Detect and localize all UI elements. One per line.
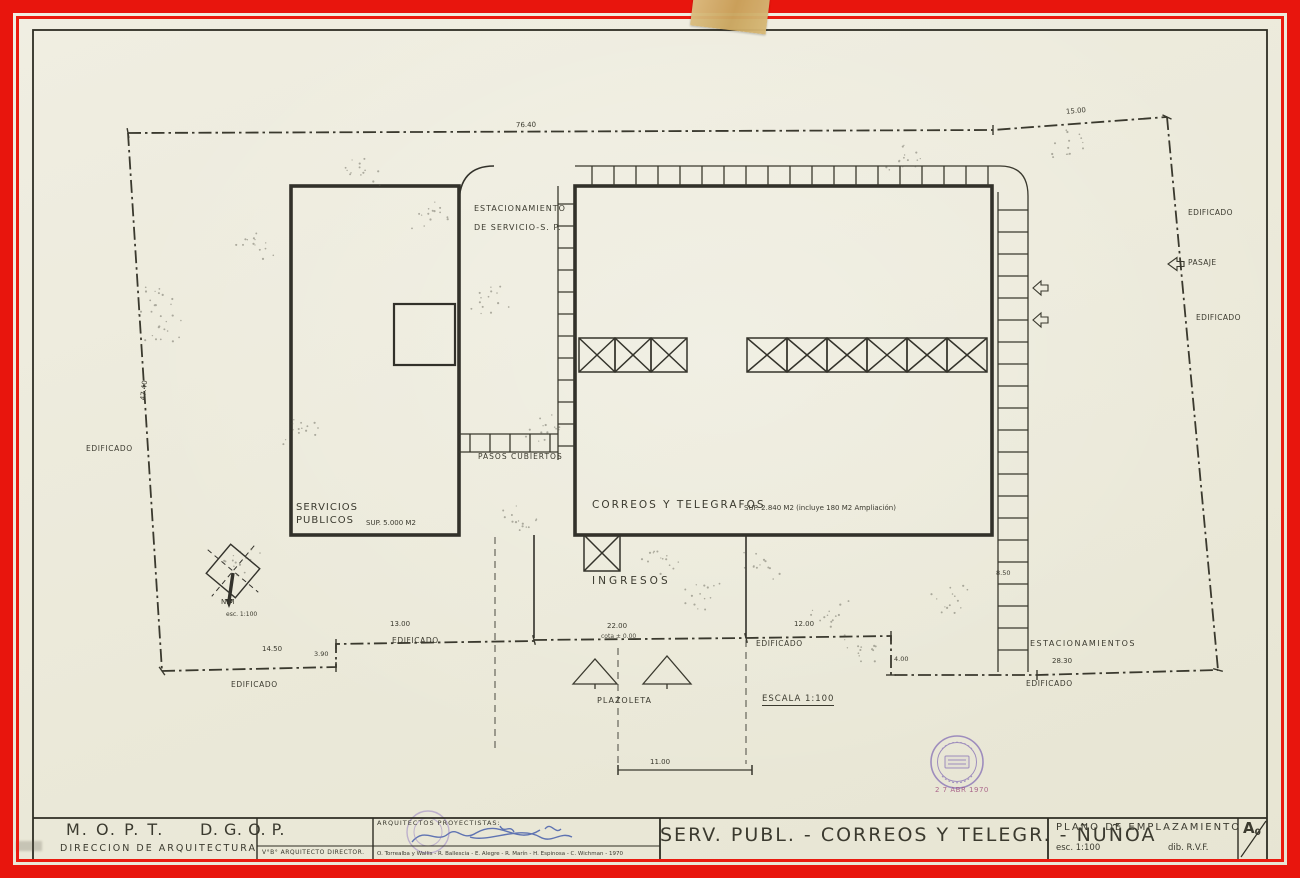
stamp-date: 2 7 ABR 1970 bbox=[935, 787, 989, 795]
estacionamiento-servicio-line2: DE SERVICIO-S. P. bbox=[474, 224, 561, 233]
vobo-label: V°B° ARQUITECTO DIRECTOR. bbox=[262, 850, 365, 857]
project-title: SERV. PUBL. - CORREOS Y TELEGR. - ÑUÑOA bbox=[660, 825, 1048, 846]
plan-labels: 76.40 15.00 47.40 14.50 3.90 13.00 22.00… bbox=[0, 0, 1300, 878]
correos-telegrafos-label: CORREOS Y TELEGRAFOS bbox=[592, 500, 766, 512]
edificado-12: EDIFICADO bbox=[756, 640, 803, 648]
drawn-by: dib. R.V.F. bbox=[1168, 844, 1209, 853]
dim-4-00: 4.00 bbox=[894, 656, 908, 663]
dim-15-00: 15.00 bbox=[1066, 107, 1087, 116]
edificado-bottom-left: EDIFICADO bbox=[231, 681, 278, 689]
dim-14-50: 14.50 bbox=[262, 646, 282, 654]
dim-47-40: 47.40 bbox=[140, 380, 150, 401]
sheet-format-letter: A bbox=[1243, 819, 1255, 837]
proyectistas-names: O. Torrealba y Wallis - R. Ballescia - E… bbox=[377, 851, 623, 857]
servicios-publicos-sup: SUP. 5.000 M2 bbox=[366, 520, 416, 528]
dim-22-00: 22.00 bbox=[607, 623, 627, 631]
dim-13-00: 13.00 bbox=[390, 621, 410, 629]
correos-telegrafos-sup: SUP. 2.840 M2 (incluye 180 M2 Ampliación… bbox=[744, 505, 896, 513]
dim-8-50: 8.50 bbox=[996, 570, 1010, 577]
north-label: N.M bbox=[221, 599, 235, 607]
pasos-cubiertos-label: PASOS CUBIERTOS bbox=[478, 453, 563, 461]
sheet-scale: esc. 1:100 bbox=[1056, 844, 1100, 853]
dim-76-40: 76.40 bbox=[516, 122, 536, 130]
pencil-smudge bbox=[16, 841, 42, 851]
north-scale-label: esc. 1:100 bbox=[226, 612, 257, 619]
edificado-top-right: EDIFICADO bbox=[1188, 209, 1233, 217]
proyectistas-label: ARQUITECTOS PROYECTISTAS: bbox=[377, 820, 501, 827]
drawing-sheet: 76.40 15.00 47.40 14.50 3.90 13.00 22.00… bbox=[0, 0, 1300, 878]
escala-label: ESCALA 1:100 bbox=[762, 695, 834, 706]
dim-3-90: 3.90 bbox=[314, 651, 328, 658]
estacionamientos-label: ESTACIONAMIENTOS bbox=[1030, 640, 1136, 649]
dim-11-00: 11.00 bbox=[650, 759, 670, 767]
org-mopt: M. O. P. T. bbox=[66, 821, 164, 839]
servicios-publicos-line1: SERVICIOS bbox=[296, 502, 358, 513]
sheet-format: A0 bbox=[1243, 820, 1261, 839]
dim-28-30: 28.30 bbox=[1052, 658, 1072, 666]
sheet-format-sub: 0 bbox=[1255, 828, 1261, 838]
edificado-bottom-right: EDIFICADO bbox=[1026, 680, 1073, 688]
cota-label: cota ± 0.00 bbox=[601, 634, 636, 641]
edificado-13: EDIFICADO bbox=[392, 637, 439, 645]
sheet-title: PLANO DE EMPLAZAMIENTO bbox=[1056, 822, 1241, 833]
org-direccion: DIRECCION DE ARQUITECTURA bbox=[60, 844, 257, 854]
plazoleta-label: PLAZOLETA bbox=[597, 697, 652, 706]
ingresos-label: INGRESOS bbox=[592, 576, 671, 588]
edificado-right-mid: EDIFICADO bbox=[1196, 314, 1241, 322]
edificado-left: EDIFICADO bbox=[86, 445, 133, 453]
servicios-publicos-line2: PUBLICOS bbox=[296, 515, 354, 526]
estacionamiento-servicio-line1: ESTACIONAMIENTO bbox=[474, 205, 566, 214]
org-dgop: D. G. O. P. bbox=[200, 821, 285, 839]
dim-12-00: 12.00 bbox=[794, 621, 814, 629]
pasaje-label: PASAJE bbox=[1188, 259, 1217, 267]
